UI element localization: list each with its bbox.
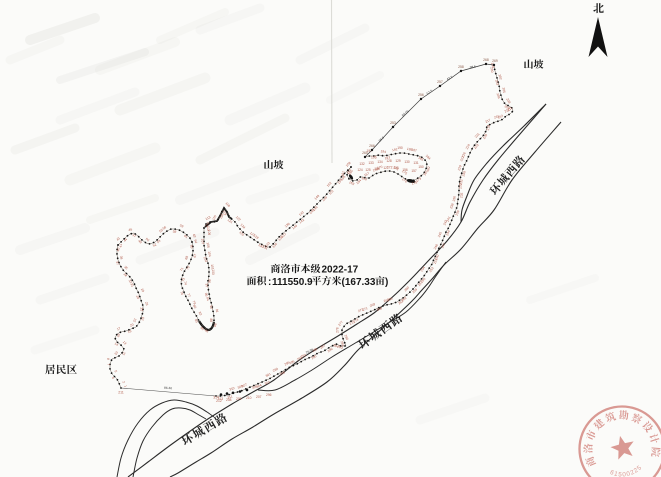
- svg-text:25: 25: [140, 308, 144, 312]
- svg-text:258: 258: [458, 65, 464, 69]
- svg-text:(167.33: (167.33: [342, 277, 376, 288]
- svg-text:253: 253: [390, 121, 396, 125]
- svg-text:268: 268: [483, 58, 489, 62]
- svg-text:257: 257: [437, 80, 443, 84]
- svg-text:107: 107: [201, 239, 205, 245]
- svg-text:126: 126: [374, 167, 380, 171]
- svg-text:256: 256: [418, 93, 424, 97]
- svg-text:278: 278: [336, 327, 340, 333]
- svg-text:133: 133: [368, 161, 374, 165]
- svg-text:269: 269: [492, 59, 498, 63]
- svg-text:150: 150: [418, 165, 424, 169]
- svg-text:111550.9: 111550.9: [272, 277, 313, 288]
- svg-text:7: 7: [107, 363, 111, 365]
- svg-text:132: 132: [359, 162, 365, 166]
- svg-text:190: 190: [397, 146, 403, 150]
- svg-text:127: 127: [383, 166, 389, 170]
- svg-text:97: 97: [204, 283, 208, 287]
- svg-text:208: 208: [226, 398, 232, 402]
- svg-text:205: 205: [502, 87, 507, 93]
- svg-text:129: 129: [395, 159, 401, 163]
- svg-text:207: 207: [256, 395, 262, 399]
- svg-text:236: 236: [452, 196, 457, 202]
- svg-text:265: 265: [362, 151, 368, 155]
- svg-text::: :: [268, 277, 271, 288]
- svg-text:210: 210: [246, 396, 252, 400]
- svg-text:134: 134: [377, 160, 383, 164]
- svg-text:196: 196: [371, 156, 377, 160]
- svg-text:155: 155: [393, 166, 399, 170]
- svg-text:89: 89: [209, 318, 213, 322]
- svg-text:): ): [385, 277, 388, 288]
- svg-text:211: 211: [118, 391, 124, 395]
- svg-text:266: 266: [369, 144, 375, 148]
- svg-text:296: 296: [266, 393, 272, 397]
- svg-text:235: 235: [459, 192, 464, 198]
- svg-text:100: 100: [211, 269, 215, 275]
- svg-text:124: 124: [357, 168, 363, 172]
- svg-text:209: 209: [236, 397, 242, 401]
- svg-text:157: 157: [411, 169, 417, 173]
- svg-text:125: 125: [365, 168, 371, 172]
- svg-text:156: 156: [402, 168, 408, 172]
- svg-text:86.46: 86.46: [164, 386, 172, 390]
- svg-text:130: 130: [404, 160, 410, 164]
- svg-text:212: 212: [216, 399, 222, 403]
- svg-text:128: 128: [386, 159, 392, 163]
- svg-text:233: 233: [458, 183, 462, 189]
- svg-text:2022-17: 2022-17: [322, 264, 359, 275]
